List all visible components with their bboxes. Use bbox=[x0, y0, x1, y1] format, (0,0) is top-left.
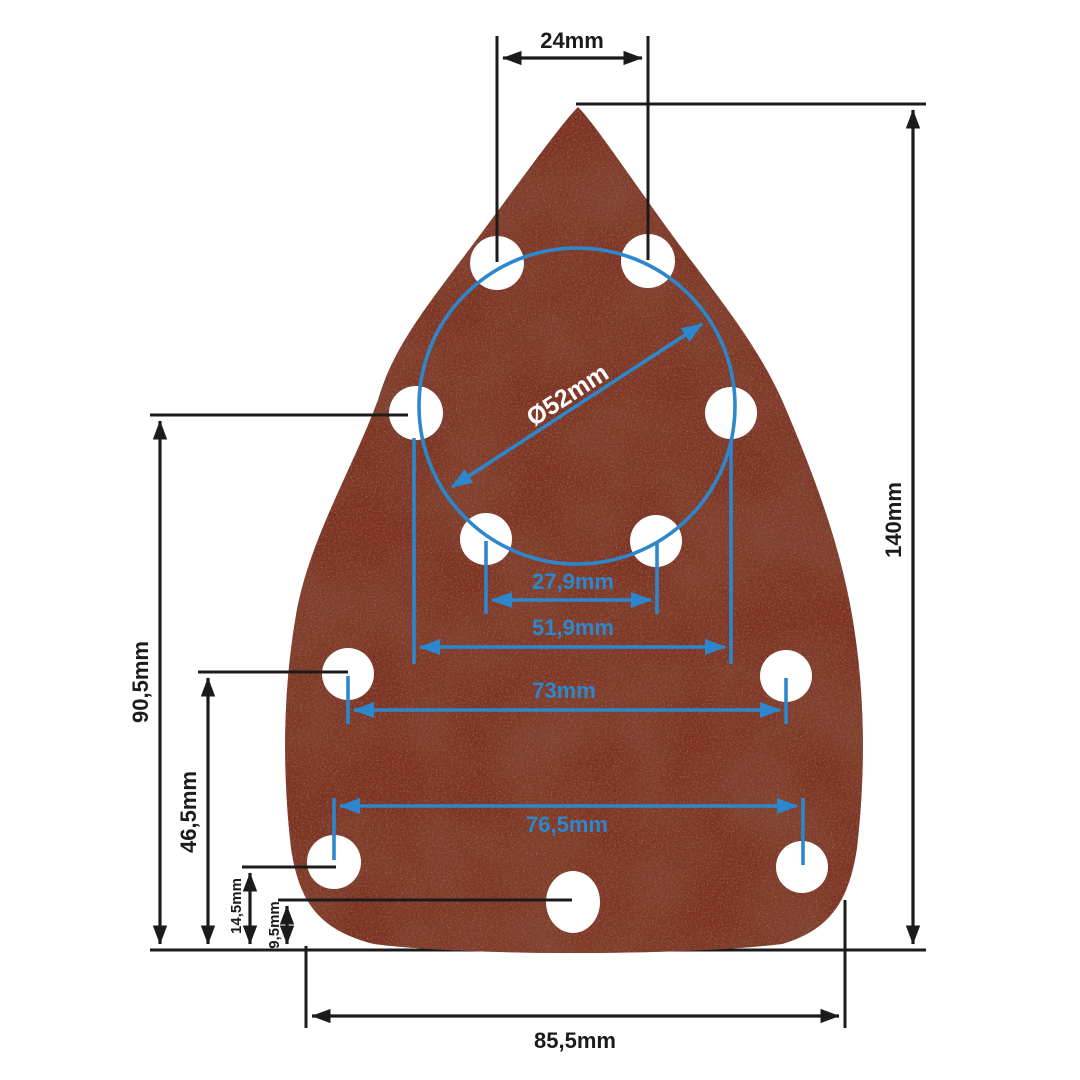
hole-bottom-center bbox=[546, 871, 600, 933]
sanding-sheet-texture bbox=[260, 90, 890, 970]
hole-upper-left bbox=[389, 386, 443, 440]
dim-label-14-5mm: 14,5mm bbox=[228, 878, 245, 934]
dim-label-46-5mm: 46,5mm bbox=[176, 771, 201, 853]
dim-label-140mm: 140mm bbox=[881, 482, 906, 558]
dim-label-24mm: 24mm bbox=[540, 28, 604, 53]
dim-label-85-5mm: 85,5mm bbox=[534, 1028, 616, 1053]
diagram-canvas: 24mm 140mm 90,5mm 46,5mm 14,5mm bbox=[0, 0, 1080, 1080]
dim-label-90-5mm: 90,5mm bbox=[128, 641, 153, 723]
dim-label-27-9mm: 27,9mm bbox=[532, 569, 614, 594]
dim-label-73mm: 73mm bbox=[532, 678, 596, 703]
sanding-sheet bbox=[260, 90, 890, 970]
dim-label-9-5mm: 9,5mm bbox=[266, 901, 283, 949]
hole-upper-right bbox=[705, 387, 757, 439]
dim-label-76-5mm: 76,5mm bbox=[526, 812, 608, 837]
dim-label-51-9mm: 51,9mm bbox=[532, 615, 614, 640]
dimension-diagram-svg: 24mm 140mm 90,5mm 46,5mm 14,5mm bbox=[0, 0, 1080, 1080]
